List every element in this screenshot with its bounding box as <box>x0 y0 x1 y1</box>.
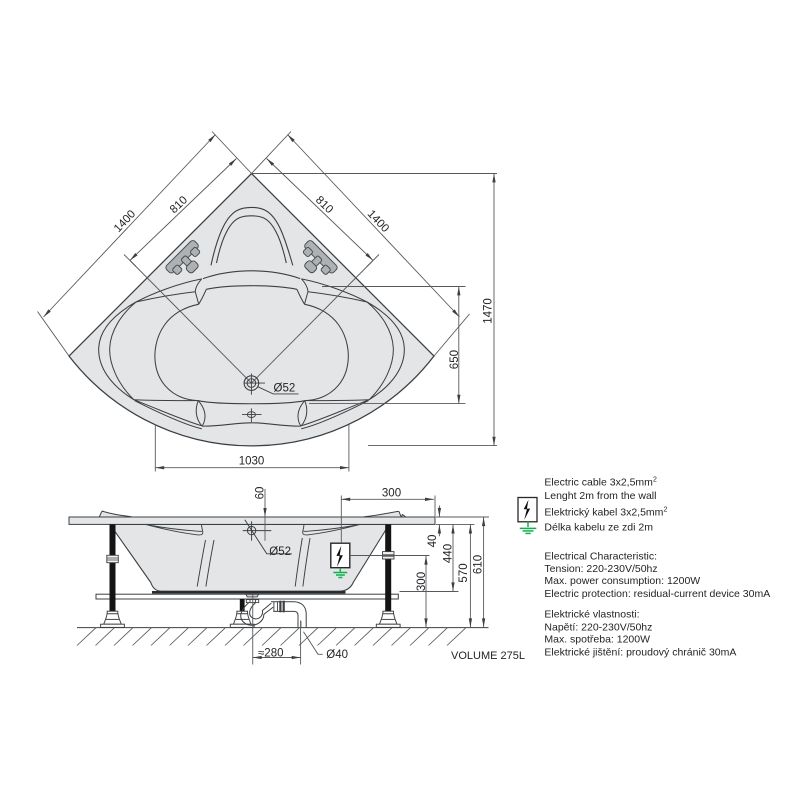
svg-text:Electrical Characteristic:: Electrical Characteristic: <box>544 551 657 563</box>
svg-text:1470: 1470 <box>483 298 495 324</box>
svg-text:60: 60 <box>255 487 267 500</box>
svg-text:570: 570 <box>458 563 470 582</box>
svg-text:Ø52: Ø52 <box>274 383 296 395</box>
svg-text:40: 40 <box>427 535 439 548</box>
svg-text:440: 440 <box>443 544 455 563</box>
svg-text:Electric protection: residual-: Electric protection: residual-current de… <box>544 588 770 600</box>
svg-text:300: 300 <box>382 487 401 499</box>
svg-text:1030: 1030 <box>239 456 265 468</box>
svg-text:Ø52: Ø52 <box>269 546 291 558</box>
svg-text:Tension: 220-230V/50hz: Tension: 220-230V/50hz <box>544 563 657 575</box>
svg-text:Elektrické jištění: proudový c: Elektrické jištění: proudový chránič 30m… <box>544 647 736 659</box>
svg-text:Elektrické vlastnosti:: Elektrické vlastnosti: <box>544 608 639 620</box>
svg-text:810: 810 <box>313 194 335 216</box>
svg-text:810: 810 <box>168 194 190 216</box>
svg-text:VOLUME 275L: VOLUME 275L <box>451 650 525 662</box>
svg-text:Max. spotřeba: 1200W: Max. spotřeba: 1200W <box>544 634 650 646</box>
svg-text:Max. power consumption: 1200W: Max. power consumption: 1200W <box>544 575 700 587</box>
svg-text:300: 300 <box>416 572 428 591</box>
svg-text:≈280: ≈280 <box>258 647 284 659</box>
svg-text:610: 610 <box>472 555 484 574</box>
svg-text:Electric cable 3x2,5mm2: Electric cable 3x2,5mm2 <box>544 476 657 488</box>
svg-text:Napětí: 220-230V/50hz: Napětí: 220-230V/50hz <box>544 621 652 633</box>
svg-text:Délka kabelu ze zdi 2m: Délka kabelu ze zdi 2m <box>544 522 653 534</box>
svg-text:650: 650 <box>449 350 461 369</box>
svg-text:Lenght 2m from the wall: Lenght 2m from the wall <box>544 490 656 502</box>
svg-text:Ø40: Ø40 <box>326 649 348 661</box>
svg-text:Elektrický kabel 3x2,5mm2: Elektrický kabel 3x2,5mm2 <box>544 506 667 518</box>
